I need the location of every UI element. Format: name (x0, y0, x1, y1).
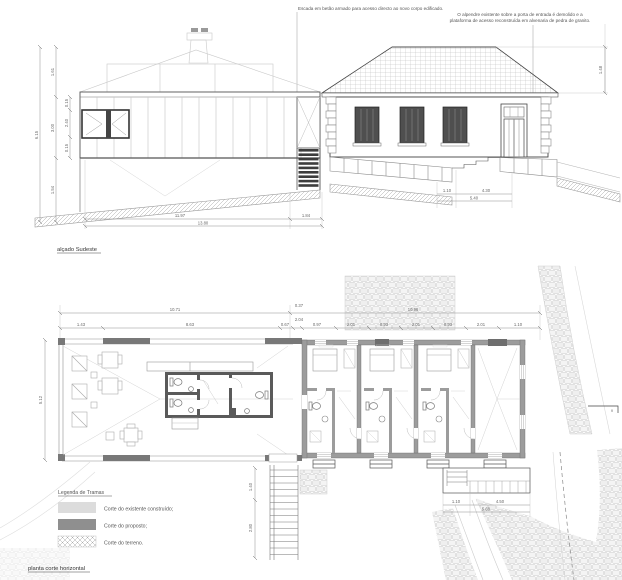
note-porch-line2: plataforma de acesso reconstruída em alv… (450, 18, 591, 23)
plan-access-platform: 1.10 4.50 5.60 (443, 468, 530, 516)
dim-platform-seg: 1.10 (452, 499, 461, 504)
dim-platform-seg: 4.50 (496, 499, 505, 504)
swatch-existing (58, 502, 96, 513)
dim-seg: 0.67 (281, 322, 290, 327)
dim-steps-total: 5.40 (470, 196, 479, 201)
dim-plan-right-total: 10.96 (408, 307, 419, 312)
kitchen-counter (147, 362, 253, 371)
window-shutter (398, 107, 426, 146)
proposed-infill (488, 339, 507, 346)
sanitary-core (165, 372, 273, 429)
swatch-terrain (58, 536, 96, 547)
proposed-wall-segments (58, 338, 302, 461)
exterior-step-blocks (313, 460, 506, 468)
dim-window-seg: 0.15 (64, 143, 69, 152)
elevation-dimensions-left: 6.15 1.61 3.00 1.54 0.15 2.40 0.15 (34, 45, 72, 224)
dim-seg: 1.43 (77, 322, 86, 327)
dim-left-seg: 1.61 (50, 67, 55, 76)
legend-title: Legenda de Tramas (58, 490, 105, 496)
dim-roof-height: 1.48 (598, 65, 603, 74)
dim-seg: 0.93 (380, 322, 389, 327)
dim-steps-seg: 1.10 (443, 188, 452, 193)
level-marker-label: v (611, 408, 614, 413)
dim-bottom-seg: 11.97 (175, 213, 186, 218)
dim-left-seg: 1.54 (50, 185, 55, 194)
elevation-background-roof (80, 33, 320, 92)
elevation-terrain (35, 178, 620, 227)
stone-landing (300, 470, 327, 494)
lounge-furniture (72, 352, 142, 446)
entrance-door (501, 104, 527, 157)
dim-plan-height: 5.12 (38, 395, 43, 404)
core-step (172, 418, 198, 429)
wc-fixtures (170, 378, 268, 413)
legend-item-label: Corte do proposto; (104, 524, 147, 530)
unit-door-swings (350, 428, 475, 439)
architectural-drawing-sheet: Escada em betão armado para acesso direc… (0, 0, 622, 580)
entrance-steps (452, 158, 500, 169)
chimney-cap (191, 28, 208, 32)
dim-platform-total: 5.60 (482, 507, 491, 512)
dim-seg: 8.63 (186, 322, 195, 327)
dim-steps-seg: 4.30 (482, 188, 491, 193)
dim-junction: 2.04 (295, 317, 304, 322)
tiled-hip-roof (322, 47, 558, 93)
dim-stair-seg: 2.80 (248, 523, 253, 532)
note-porch-line1: O alpendre existente sobre a porta de en… (457, 12, 583, 17)
dim-seg: 2.01 (347, 322, 356, 327)
plan-title: planta corte horizontal (28, 566, 85, 572)
guest-unit-3 (421, 345, 469, 453)
dim-window-seg: 2.40 (64, 118, 69, 127)
dim-bottom-total: 13.80 (198, 221, 209, 226)
shuttered-windows (353, 107, 469, 146)
floor-plan: 10.71 10.96 0.37 2.04 1.43 8.63 0.67 0.9… (0, 266, 622, 580)
party-wall-doors (302, 395, 475, 439)
guest-unit-2 (364, 345, 412, 453)
dim-seg: 1.10 (514, 322, 523, 327)
elevation-access-stair (297, 97, 320, 190)
eaves-band (322, 93, 558, 97)
legend: Legenda de Tramas Corte do existente con… (58, 490, 173, 547)
elevation-southeast: 6.15 1.61 3.00 1.54 0.15 2.40 0.15 11.97… (34, 24, 620, 253)
window-shutter (441, 107, 469, 146)
door-swings (200, 378, 242, 409)
dim-plan-left-total: 10.71 (170, 307, 181, 312)
terrain-cut-guides (110, 160, 220, 196)
legend-item-label: Corte do existente construído; (104, 507, 173, 513)
elevation-existing-house (322, 47, 620, 192)
end-room (478, 348, 520, 450)
drawing-canvas: Escada em betão armado para acesso direc… (0, 0, 622, 580)
dim-seg: 0.93 (444, 322, 453, 327)
elevation-dark-window (82, 110, 129, 138)
guest-unit-1 (307, 345, 355, 453)
elevation-title: alçado Sudeste (57, 247, 97, 253)
dim-window-seg: 0.15 (64, 98, 69, 107)
plan-dimension-left: 5.12 (38, 338, 47, 462)
dim-seg: 0.97 (313, 322, 322, 327)
dim-junction: 0.37 (295, 303, 304, 308)
note-stair: Escada em betão armado para acesso direc… (298, 6, 443, 11)
dim-seg: 2.01 (412, 322, 421, 327)
level-marker: v (588, 406, 618, 413)
dim-seg: 2.01 (477, 322, 486, 327)
plan-proposed-volume (58, 338, 302, 461)
dim-bottom-seg: 1.84 (302, 213, 311, 218)
dim-left-total: 6.15 (34, 130, 39, 139)
plan-external-stair: 1.40 2.80 (248, 454, 327, 560)
dim-stair-seg: 1.40 (248, 482, 253, 491)
plan-existing-house (302, 339, 525, 468)
legend-item-label: Corte do terreno. (104, 541, 143, 547)
window-shutter (353, 107, 381, 146)
plan-dimensions-top: 10.71 10.96 0.37 2.04 1.43 8.63 0.67 0.9… (58, 303, 542, 340)
dim-left-seg: 3.00 (50, 123, 55, 132)
swatch-proposed (58, 519, 96, 530)
stair-treads (299, 149, 319, 187)
